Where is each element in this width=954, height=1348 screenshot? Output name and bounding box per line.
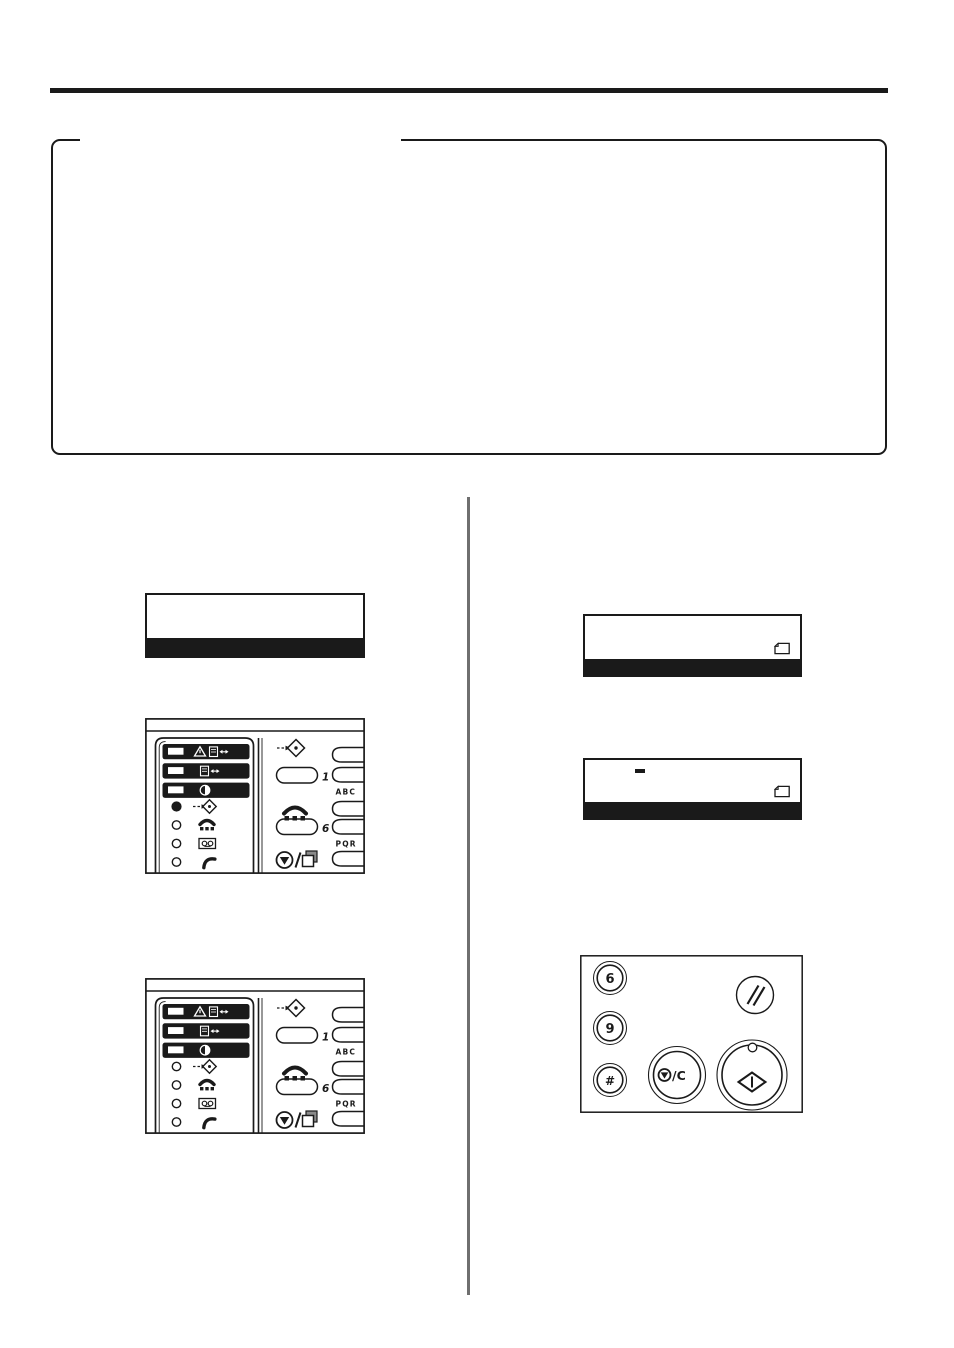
indicator-bar-warning [163, 1004, 250, 1019]
indicator-bar-contrast [163, 783, 250, 798]
document-icon [773, 785, 791, 798]
lcd-highlight-bar [585, 659, 800, 675]
reset-key [737, 977, 774, 1014]
indicator-bar-document [163, 763, 250, 778]
column-divider [467, 497, 470, 1295]
control-panel-figure-2: 1 ABC 6 PQR [145, 978, 365, 1134]
indicator-bar-warning [163, 744, 250, 759]
control-panel-figure-1: 1 ABC 6 PQR [145, 718, 365, 874]
handset-icon [202, 1116, 215, 1128]
led [172, 839, 180, 847]
manual-page: 1 ABC 6 PQR [0, 0, 954, 1348]
letters-pqr: PQR [336, 1100, 357, 1109]
memory-led-on [172, 802, 181, 811]
led [172, 1118, 180, 1126]
indicator-bar-contrast [163, 1043, 250, 1058]
key-hash-label: # [605, 1074, 615, 1088]
one-touch-label-1: 1 [322, 772, 329, 784]
stop-copy-icon [277, 851, 318, 868]
note-box [51, 139, 887, 455]
reset-icon [748, 986, 765, 1006]
key-button [277, 768, 318, 784]
on-hook-speaker-icon [200, 1081, 214, 1091]
led [172, 858, 180, 866]
letters-abc: ABC [336, 1048, 357, 1057]
letters-pqr: PQR [336, 840, 357, 849]
start-led [748, 1043, 757, 1052]
key-9-label: 9 [605, 1022, 614, 1037]
memory-transmit-icon [193, 1060, 216, 1073]
key-6-label: 6 [605, 972, 614, 987]
stop-clear-label: /C [672, 1068, 686, 1083]
lcd-highlight-bar [585, 802, 800, 818]
key-hash: # [594, 1064, 627, 1097]
led [172, 1081, 180, 1089]
memory-transmit-icon [193, 800, 216, 813]
key-button [277, 1028, 318, 1044]
memory-transmit-key-icon [277, 740, 305, 757]
one-touch-label-1: 1 [322, 1032, 329, 1044]
one-touch-label-6: 6 [322, 823, 329, 835]
letters-abc: ABC [336, 788, 357, 797]
answering-machine-icon [199, 1099, 216, 1109]
section-rule [50, 88, 888, 93]
lcd-display-right-2 [583, 758, 802, 820]
handset-icon [202, 856, 215, 868]
lcd-display-left [145, 593, 365, 658]
indicator-bar-document [163, 1023, 250, 1038]
lcd-display-right-1 [583, 614, 802, 677]
key-button [277, 1079, 318, 1095]
key-9: 9 [594, 1012, 627, 1045]
memory-led-off [172, 1062, 180, 1070]
keypad-figure: 6 9 # /C [580, 955, 803, 1113]
one-touch-label-6: 6 [322, 1083, 329, 1095]
lcd-cursor-dash [635, 769, 645, 773]
led [172, 821, 180, 829]
stop-clear-key: /C [649, 1047, 706, 1104]
stop-copy-icon [277, 1111, 318, 1128]
document-icon [773, 642, 791, 655]
on-hook-speaker-icon [200, 821, 214, 831]
key-6: 6 [594, 962, 627, 995]
memory-transmit-key-icon [277, 1000, 305, 1017]
note-box-title-gap [80, 136, 401, 145]
answering-machine-icon [199, 839, 216, 849]
led-rect [168, 748, 184, 755]
start-key [717, 1040, 787, 1110]
key-button [277, 819, 318, 835]
stop-symbol-icon [659, 1069, 671, 1081]
lcd-highlight-bar [147, 638, 363, 656]
led [172, 1099, 180, 1107]
start-icon [739, 1073, 766, 1092]
